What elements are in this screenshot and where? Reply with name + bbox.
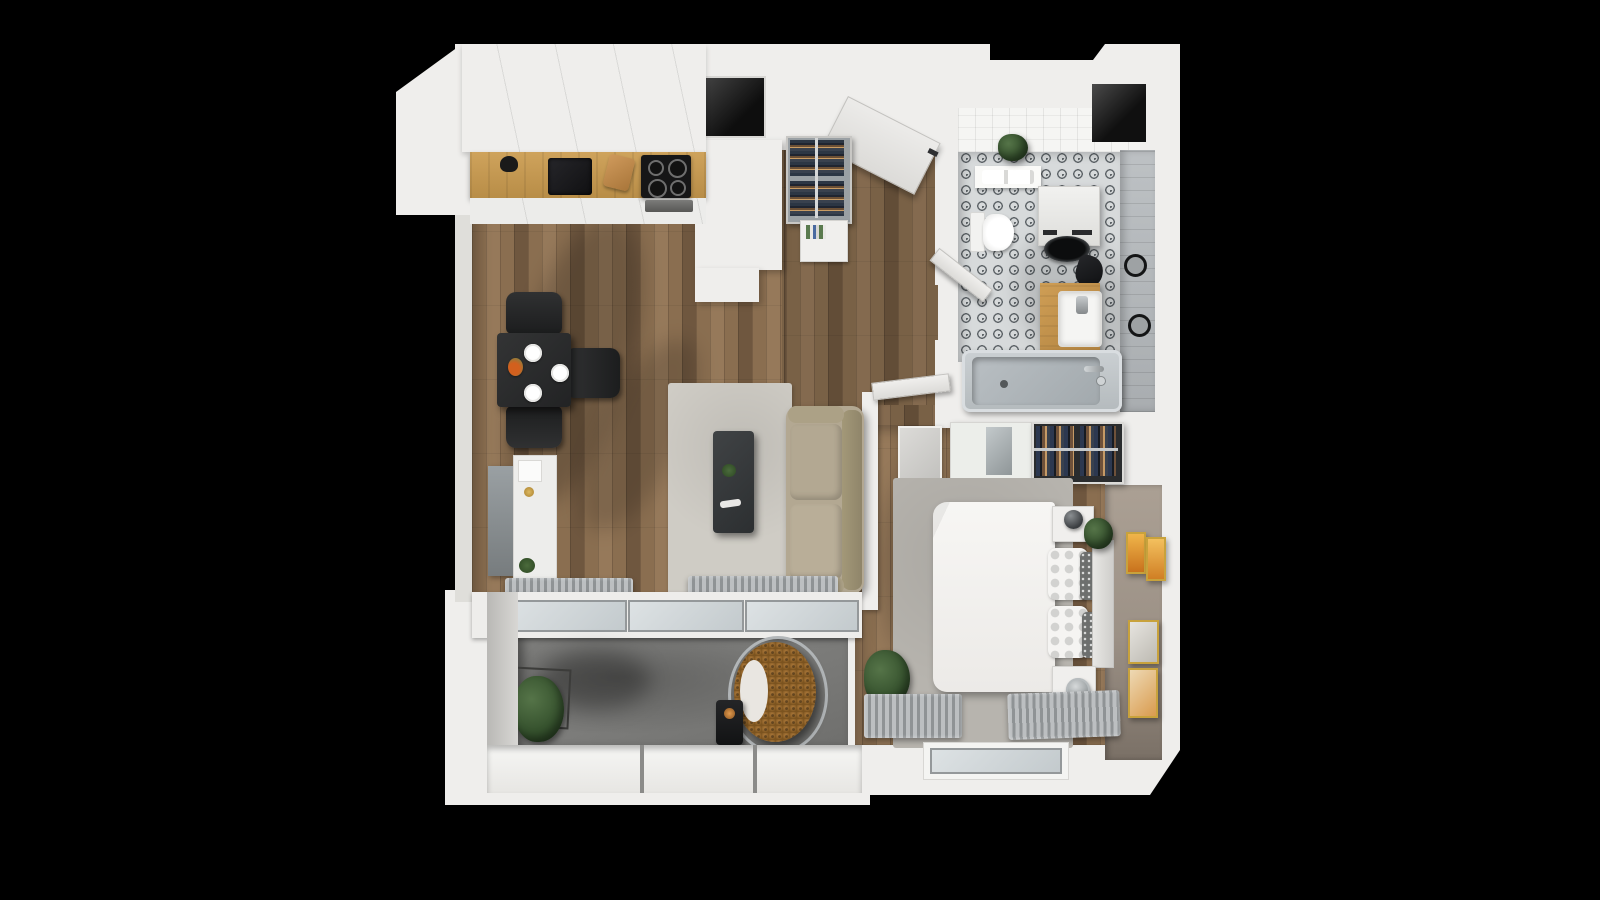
tv-sideboard-front (488, 466, 513, 576)
wall-niche (702, 76, 766, 138)
dining-chair-right (568, 348, 620, 398)
bedroom-small-cabinet (898, 426, 942, 482)
towel-ring (1128, 314, 1151, 337)
washer-controls (1072, 230, 1092, 235)
upper-cabinets (462, 44, 706, 152)
lantern-candle (724, 708, 735, 719)
sofa-cushion (790, 424, 842, 500)
bathroom-plant (998, 134, 1028, 161)
parapet-joint (753, 745, 757, 793)
shelf-books (806, 225, 826, 239)
bedroom-radiator-left (864, 694, 962, 738)
kitchen-sink (548, 158, 592, 195)
wardrobe-mirror (986, 427, 1012, 475)
sofa-backrest (842, 410, 862, 590)
egg-chair-cushion (740, 660, 768, 722)
coat-rack-rail (815, 138, 818, 218)
bathtub-handle (1096, 376, 1106, 386)
burner (668, 159, 687, 178)
burner (670, 180, 686, 196)
sofa-cushion (790, 504, 842, 580)
vent-shaft (1092, 84, 1146, 142)
bed-duvet (933, 502, 1055, 692)
towel-ring (1124, 254, 1147, 277)
bathtub-basin (972, 357, 1100, 405)
bathroom-towels (982, 170, 1034, 184)
oven-front (645, 200, 693, 212)
sink-faucet (1076, 296, 1088, 314)
flower-centerpiece (508, 358, 523, 376)
bedside-plant (1084, 518, 1113, 549)
balcony-left-wall-face (487, 592, 518, 745)
parapet-joint (640, 745, 644, 793)
bathtub-faucet (1084, 366, 1104, 372)
dining-chair-top (506, 292, 562, 334)
nightstand-lamp-top (1064, 510, 1083, 529)
sideboard-decor-card (518, 460, 542, 482)
sofa-arm (788, 406, 844, 423)
kitchen-faucet (500, 156, 518, 172)
washer-controls (1043, 230, 1057, 235)
headboard (1092, 540, 1114, 668)
sideboard-plant (519, 558, 535, 573)
wall-frame (1128, 620, 1159, 664)
sideboard-decor-gold (524, 487, 534, 497)
coffee-table (713, 431, 754, 533)
closet-clothes-left (1036, 426, 1074, 476)
balcony-glass-door (505, 600, 627, 632)
bathroom-gray-tile-wall (1120, 150, 1155, 412)
balcony-plant (514, 676, 564, 742)
kitchen-cabinet-step (695, 268, 759, 302)
floor-plan (0, 0, 1600, 900)
closet-clothes-right (1080, 426, 1116, 476)
dining-chair-bottom (506, 406, 562, 448)
wall-frame (1128, 668, 1158, 718)
wall-frame (1126, 532, 1146, 574)
coffee-table-plant (722, 464, 736, 477)
plate (524, 344, 542, 362)
closet-rail (1034, 448, 1118, 451)
balcony-glass-door (745, 600, 859, 632)
kitchen-tall-cabinet (695, 140, 782, 270)
living-left-wall-face (455, 215, 472, 602)
bathtub-drain (1000, 380, 1008, 388)
balcony-lantern (716, 700, 743, 745)
burner (648, 179, 667, 198)
balcony-glass-door (628, 600, 744, 632)
living-corridor-partition (862, 392, 878, 610)
balcony-parapet (487, 745, 862, 793)
plate (551, 364, 569, 382)
burner (648, 160, 664, 176)
toilet-bowl (983, 214, 1014, 251)
wall-frame (1146, 537, 1166, 581)
bedroom-radiator-right (1007, 690, 1121, 740)
bedroom-window-glass (930, 748, 1062, 774)
bedroom-closet-back-wall (1120, 422, 1162, 485)
plate (524, 384, 542, 402)
